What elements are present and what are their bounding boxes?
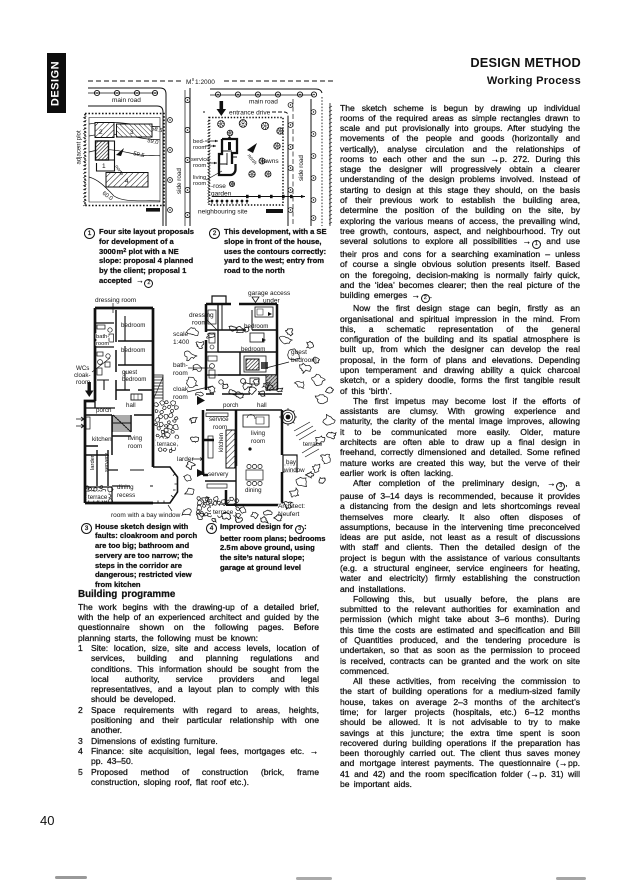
svg-text:side road: side road <box>176 168 183 194</box>
svg-text:terrace: terrace <box>88 494 108 501</box>
svg-text:bedroom: bedroom <box>121 322 145 329</box>
svg-text:main road: main road <box>112 97 141 104</box>
svg-text:1: 1 <box>102 163 106 170</box>
svg-text:room: room <box>96 341 109 347</box>
svg-text:bedroom: bedroom <box>241 346 265 353</box>
svg-text:entrance drive: entrance drive <box>229 110 271 117</box>
svg-text:room: room <box>173 370 188 377</box>
svg-text:lawns: lawns <box>262 158 279 165</box>
svg-text:59.0: 59.0 <box>147 138 159 146</box>
svg-text:kitchen: kitchen <box>92 436 112 443</box>
svg-text:terrace: terrace <box>213 509 234 516</box>
svg-text:60.0: 60.0 <box>101 191 114 202</box>
svg-text:cloak: cloak <box>173 386 189 393</box>
svg-text:-rose: -rose <box>211 183 226 190</box>
svg-text:dining: dining <box>245 487 262 494</box>
svg-text:adjacent plot: adjacent plot <box>77 130 83 164</box>
svg-text:cloak-: cloak- <box>74 372 91 379</box>
svg-text:room: room <box>193 181 206 187</box>
svg-text:bath-: bath- <box>173 362 188 369</box>
svg-text:servery: servery <box>208 471 229 478</box>
svg-text:room: room <box>213 424 227 431</box>
svg-text:kitchen: kitchen <box>219 433 225 452</box>
svg-text:room: room <box>251 438 265 445</box>
svg-text:porch: porch <box>223 402 239 409</box>
svg-text:dressing room: dressing room <box>95 297 136 304</box>
svg-text:side road: side road <box>298 155 305 181</box>
svg-text:terrace: terrace <box>303 441 323 448</box>
svg-text:service: service <box>209 416 229 423</box>
svg-text:Neufert: Neufert <box>278 511 300 518</box>
svg-text:neighbouring site: neighbouring site <box>198 209 248 216</box>
svg-text:bay: bay <box>286 459 297 466</box>
svg-text:room: room <box>193 145 206 151</box>
svg-text:living: living <box>128 435 143 442</box>
svg-text:bedroom: bedroom <box>121 347 145 354</box>
svg-text:guest: guest <box>122 369 137 376</box>
svg-text:WCs: WCs <box>76 365 89 372</box>
svg-text:room: room <box>192 320 207 327</box>
svg-text:main road: main road <box>249 99 278 106</box>
svg-text:bedroom: bedroom <box>122 376 146 383</box>
svg-text:room with a bay window: room with a bay window <box>111 512 181 519</box>
svg-text:59.5: 59.5 <box>133 151 145 159</box>
svg-text:hall: hall <box>126 402 136 409</box>
svg-text:dressing: dressing <box>189 312 214 319</box>
svg-text:bath-: bath- <box>96 334 109 340</box>
svg-text:1:400: 1:400 <box>173 339 190 346</box>
svg-text:M. 1:2000: M. 1:2000 <box>186 79 215 86</box>
svg-text:room: room <box>128 443 142 450</box>
svg-text:bedroom: bedroom <box>244 323 268 330</box>
svg-text:dining: dining <box>117 484 134 491</box>
svg-text:3: 3 <box>130 129 134 136</box>
svg-text:garage access: garage access <box>248 290 291 297</box>
svg-text:2: 2 <box>99 129 103 136</box>
svg-text:hall: hall <box>257 402 267 409</box>
svg-text:living: living <box>251 430 266 437</box>
svg-text:window: window <box>283 467 305 474</box>
svg-text:scale: scale <box>173 331 189 338</box>
svg-text:4: 4 <box>125 178 129 185</box>
svg-text:larder: larder <box>177 456 194 463</box>
svg-text:north: north <box>246 153 258 166</box>
svg-text:recess: recess <box>117 492 135 499</box>
svg-text:room: room <box>193 163 206 169</box>
svg-text:terrace: terrace <box>157 441 177 448</box>
svg-text:larder: larder <box>90 455 96 470</box>
svg-text:room: room <box>173 394 188 401</box>
svg-text:servery: servery <box>104 453 110 472</box>
